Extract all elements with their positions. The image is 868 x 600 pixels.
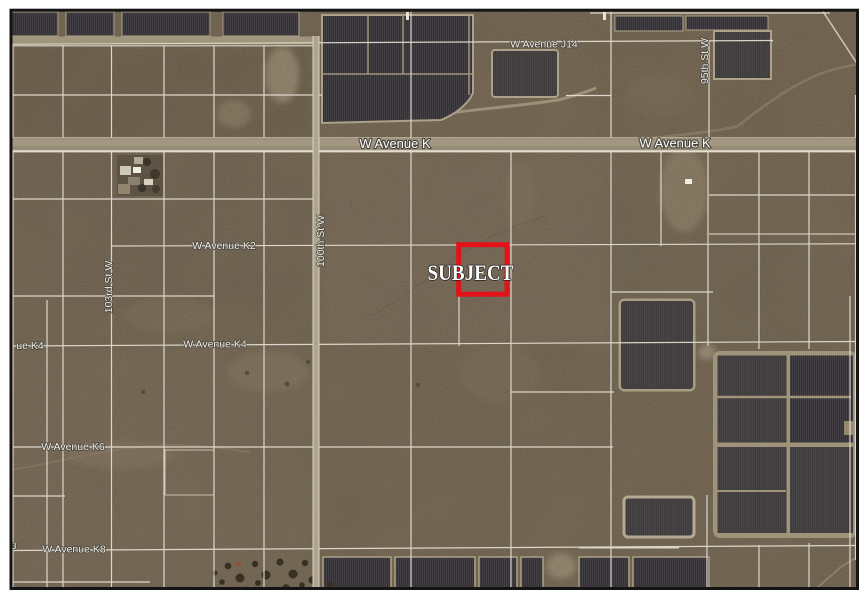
- svg-text:W Avenue K4: W Avenue K4: [183, 339, 247, 351]
- svg-text:95th St W: 95th St W: [699, 38, 711, 84]
- svg-text:W Avenue K: W Avenue K: [639, 136, 711, 151]
- svg-text:W Avenue K6: W Avenue K6: [41, 441, 105, 453]
- svg-text:ue K4: ue K4: [16, 340, 44, 352]
- svg-text:W Avenue K8: W Avenue K8: [42, 544, 106, 556]
- svg-text:SUBJECT: SUBJECT: [428, 260, 514, 285]
- svg-text:W Avenue K: W Avenue K: [359, 136, 431, 151]
- svg-text:W Avenue K2: W Avenue K2: [192, 240, 256, 252]
- svg-text:103rd St W: 103rd St W: [103, 261, 115, 314]
- svg-text:W Avenue J14: W Avenue J14: [510, 39, 578, 51]
- svg-text:100th St W: 100th St W: [315, 215, 327, 267]
